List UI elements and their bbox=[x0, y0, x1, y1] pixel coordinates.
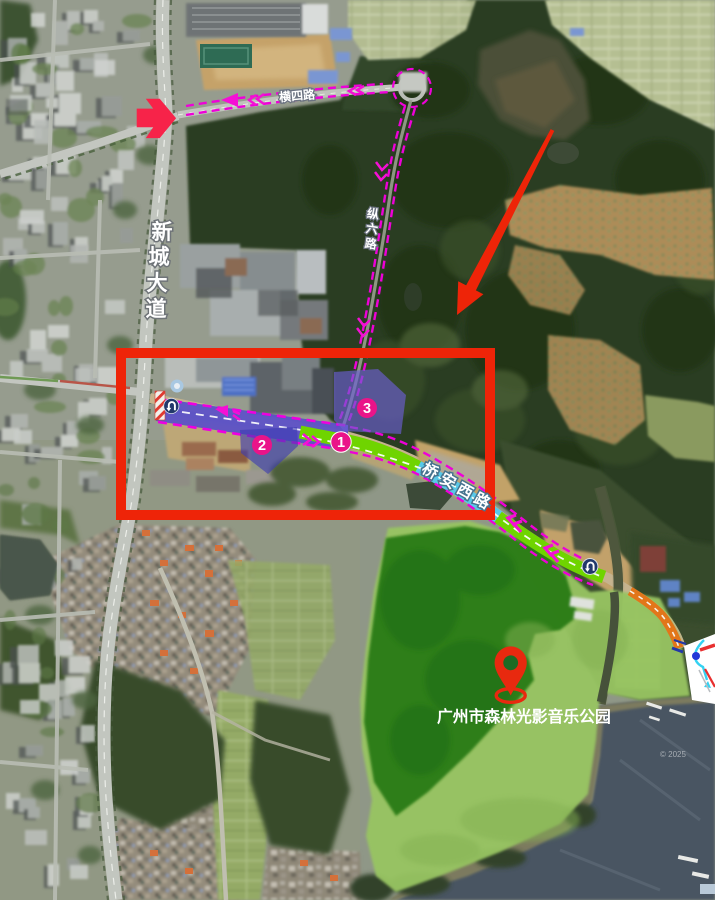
svg-text:2: 2 bbox=[258, 438, 266, 454]
svg-text:六: 六 bbox=[365, 220, 379, 237]
svg-text:© 2025: © 2025 bbox=[660, 750, 686, 759]
svg-text:新: 新 bbox=[152, 220, 173, 244]
svg-text:1: 1 bbox=[337, 435, 345, 451]
svg-text:城: 城 bbox=[149, 245, 170, 269]
svg-text:大: 大 bbox=[147, 272, 168, 295]
svg-text:3: 3 bbox=[363, 401, 371, 417]
svg-text:纵: 纵 bbox=[366, 205, 380, 222]
svg-text:道: 道 bbox=[146, 297, 167, 321]
svg-text:广州市森林光影音乐公园: 广州市森林光影音乐公园 bbox=[437, 707, 611, 726]
